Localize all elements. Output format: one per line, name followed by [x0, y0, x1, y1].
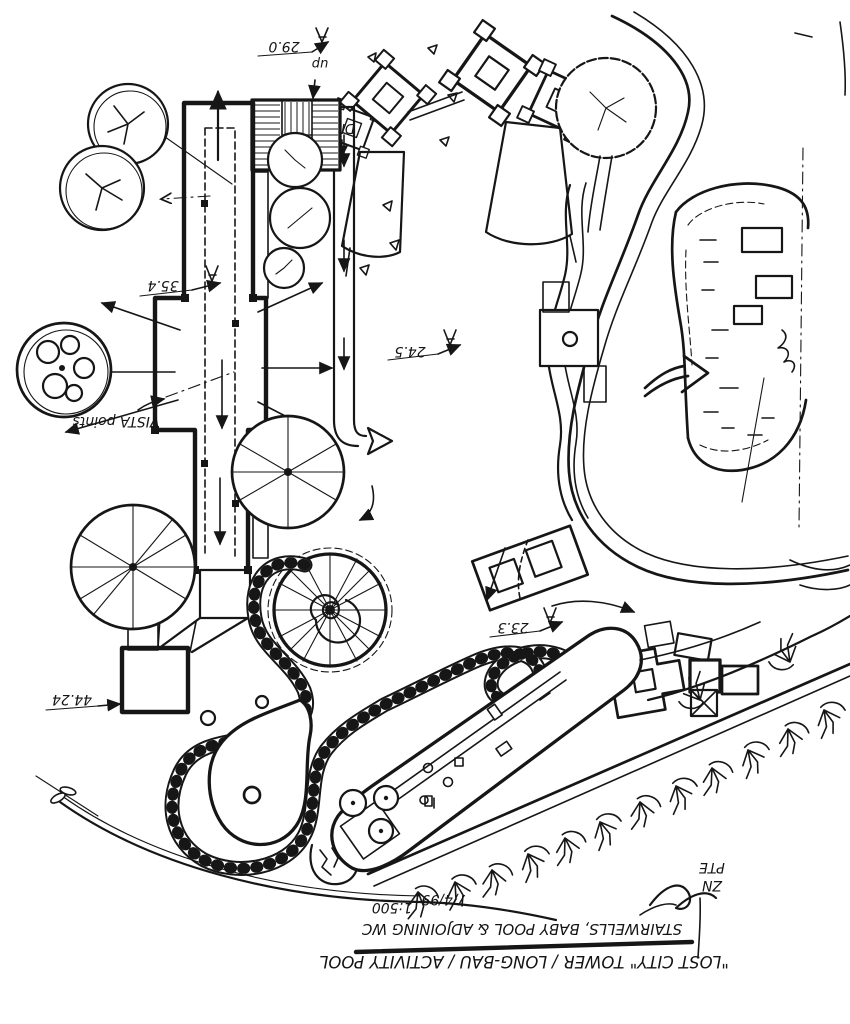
spot-level-text: 44.24 — [52, 691, 92, 707]
rock-planter — [17, 323, 111, 417]
spot-level-text: 35.4 — [147, 277, 178, 293]
sheet-title: "LOST CITY" TOWER / LONG-BAU / ACTIVITY … — [319, 952, 729, 971]
pond — [672, 22, 850, 590]
sheet-date: 7/4/99 — [421, 891, 466, 907]
spot-level-29-0: 29.0 — [258, 28, 328, 56]
spot-level-text: 29.0 — [268, 38, 299, 54]
hook-arrow — [360, 486, 374, 520]
spot-level-35-4: 35.4 — [140, 266, 220, 296]
boundary-line — [799, 148, 803, 528]
star-towers — [322, 20, 603, 276]
sketch-sheet: up DN — [0, 0, 850, 1024]
kiosk — [472, 526, 588, 610]
spot-level-23-3: 23.3 — [490, 608, 562, 637]
lower-stair — [200, 570, 250, 618]
firm-line2: PTE — [699, 859, 725, 875]
flow-arrow — [645, 356, 708, 396]
sheet-subtitle: STAIRWELLS, BABY POOL & ADJOINING WC — [361, 920, 682, 938]
vista-points-text: VISTA points — [73, 413, 160, 429]
stairs-up-label: up — [312, 56, 329, 71]
spot-level-24-5: 24.5 — [388, 330, 460, 360]
site-plan-sketch: up DN — [0, 0, 850, 1024]
title-block: "LOST CITY" TOWER / LONG-BAU / ACTIVITY … — [319, 859, 729, 971]
spot-level-44-24: 44.24 — [46, 691, 120, 710]
sheet-scale: 1:500 — [372, 899, 412, 915]
firm-line1: ZN — [701, 877, 723, 893]
